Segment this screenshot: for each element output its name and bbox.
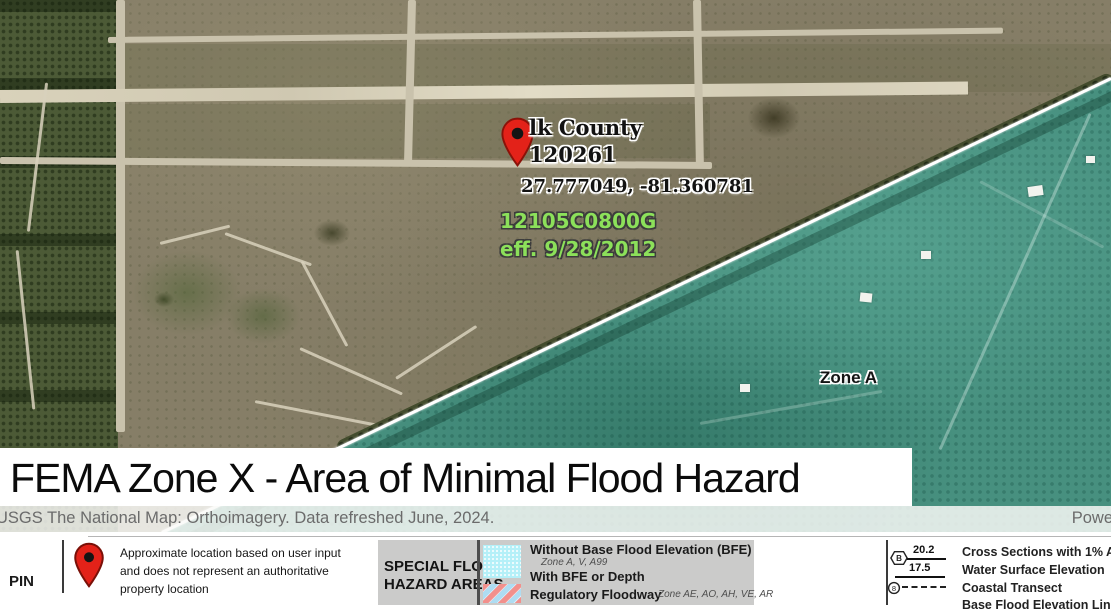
water-surface-value: 17.5 [909, 562, 930, 574]
coastal-transect-marker-icon: 8 [887, 581, 901, 595]
banner-title: FEMA Zone X - Area of Minimal Flood Haza… [10, 450, 800, 506]
cross-section-marker-icon: B [890, 550, 908, 566]
legend-section-label: Base Flood Elevation Line (BFE) [962, 598, 1111, 612]
attribution-powered-by-text[interactable]: Powe [1072, 509, 1111, 528]
cross-section-marker-letter: B [896, 554, 902, 563]
sfha-item-label: Without Base Flood Elevation (BFE) [530, 542, 752, 557]
pond [314, 220, 350, 246]
floodway-swatch [483, 584, 521, 603]
sfha-item-sublabel: Zone A, V, A99 [541, 557, 607, 568]
sfha-item-label: With BFE or Depth [530, 569, 645, 584]
county-label: lk County [529, 115, 642, 140]
attribution-bar: USGS The National Map: Orthoimagery. Dat… [0, 506, 1111, 532]
building [1027, 185, 1043, 197]
coordinates-label: 27.777049, -81.360781 [521, 176, 754, 197]
attribution-source-text: USGS The National Map: Orthoimagery. Dat… [0, 509, 494, 528]
legend-pin-description-line: Approximate location based on user input [120, 544, 341, 563]
flood-zone-trail [700, 390, 883, 425]
sfha-item-sublabel: Zone AE, AO, AH, VE, AR [658, 589, 773, 600]
legend-panel: PIN Approximate location based on user i… [0, 532, 1111, 605]
shrub-patch [225, 288, 301, 344]
cross-section-value: 20.2 [913, 544, 934, 556]
legend-pin-description-line: and does not represent an authoritative [120, 562, 329, 581]
sfha-item-label: Regulatory Floodway [530, 587, 661, 602]
dirt-road-vertical [116, 0, 125, 432]
bfe-zone-swatch [483, 545, 521, 578]
legend-divider [62, 540, 64, 593]
legend-section-label: Water Surface Elevation [962, 563, 1105, 577]
firm-panel-label: 12105C0800G [500, 209, 656, 233]
flood-result-banner: FEMA Zone X - Area of Minimal Flood Haza… [0, 448, 912, 506]
zone-a-label: Zone A [820, 368, 877, 388]
coastal-transect-dash-line [902, 586, 946, 588]
building [740, 384, 750, 392]
community-id-label: 120261 [529, 142, 617, 167]
building [1086, 156, 1095, 163]
water-surface-line [895, 576, 945, 578]
coastal-transect-marker-glyph: 8 [892, 584, 896, 593]
legend-top-border [88, 536, 1111, 537]
building [921, 251, 931, 259]
legend-divider [886, 540, 888, 605]
sfha-divider [477, 540, 480, 605]
pond [748, 98, 800, 138]
legend-section-label: Coastal Transect [962, 581, 1062, 595]
firm-effective-date-label: eff. 9/28/2012 [500, 237, 656, 261]
legend-pin-label: PIN [9, 573, 34, 590]
legend-pin-icon [74, 541, 104, 589]
cross-section-line [907, 558, 946, 560]
building [860, 292, 873, 302]
nfhl-flood-map-view: lk County 120261 27.777049, -81.360781 1… [0, 0, 1111, 605]
legend-section-label: Cross Sections with 1% Annual [962, 545, 1111, 559]
legend-pin-description-line: property location [120, 580, 209, 599]
